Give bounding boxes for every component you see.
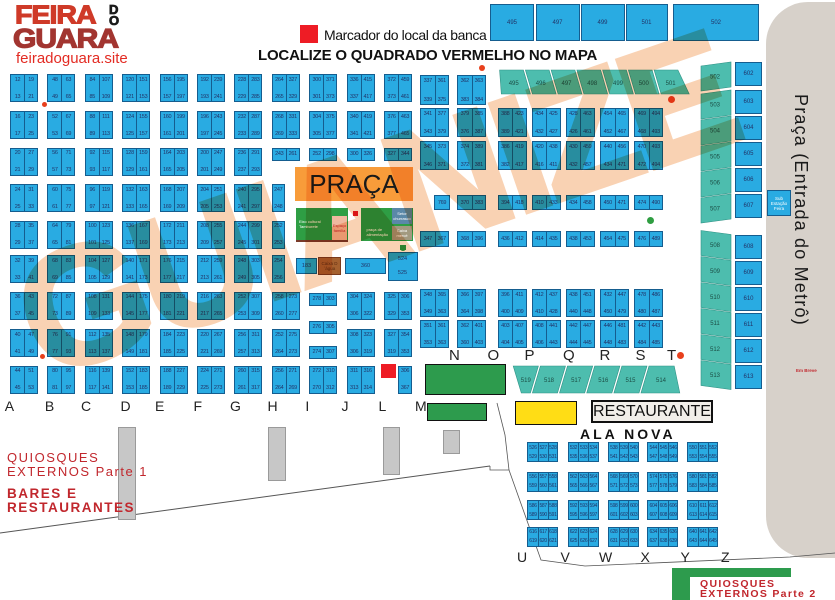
svg-text:515: 515 [625,378,636,384]
svg-text:518: 518 [544,378,555,384]
svg-text:511: 511 [710,321,720,327]
svg-text:513: 513 [710,373,721,379]
svg-text:510: 510 [710,295,721,301]
svg-text:500: 500 [639,81,650,87]
svg-text:517: 517 [571,378,582,384]
svg-text:495: 495 [509,81,520,87]
svg-text:497: 497 [561,81,572,87]
svg-text:504: 504 [710,129,721,135]
svg-text:498: 498 [587,81,598,87]
svg-text:514: 514 [656,378,667,384]
svg-text:501: 501 [666,81,677,87]
svg-text:507: 507 [710,207,721,213]
svg-text:496: 496 [536,81,547,87]
svg-text:508: 508 [710,243,721,249]
svg-text:506: 506 [710,181,721,187]
svg-text:499: 499 [613,81,624,87]
svg-text:509: 509 [710,269,721,275]
svg-text:512: 512 [710,347,721,353]
svg-text:505: 505 [710,155,721,161]
svg-text:502: 502 [710,75,721,81]
svg-text:503: 503 [710,103,721,109]
svg-text:516: 516 [598,378,609,384]
svg-text:519: 519 [521,378,532,384]
